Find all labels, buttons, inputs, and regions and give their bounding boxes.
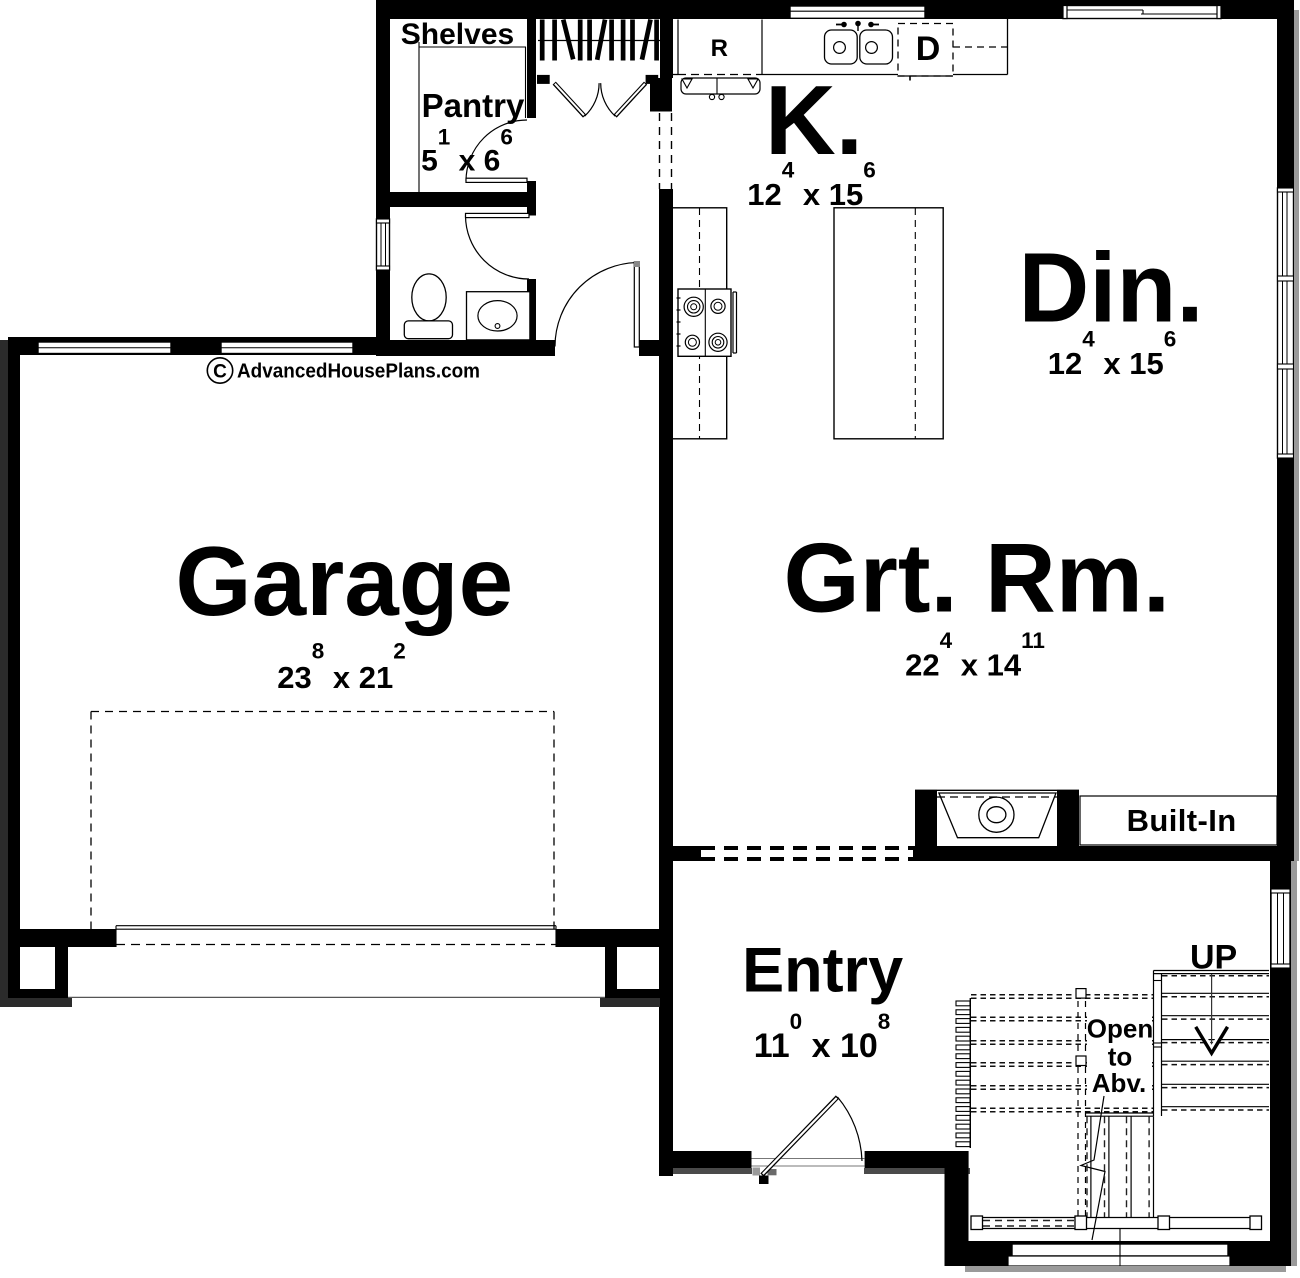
svg-text:Open: Open <box>1087 1014 1153 1044</box>
svg-text:Built-In: Built-In <box>1127 803 1237 838</box>
svg-text:D: D <box>916 30 941 68</box>
svg-text:Shelves: Shelves <box>401 18 514 51</box>
svg-text:UP: UP <box>1190 939 1237 977</box>
svg-text:R: R <box>711 35 728 62</box>
svg-text:Grt. Rm.: Grt. Rm. <box>784 522 1171 632</box>
svg-text:Abv.: Abv. <box>1092 1068 1146 1098</box>
svg-text:K.: K. <box>765 65 863 175</box>
svg-text:C: C <box>213 362 227 383</box>
svg-text:to: to <box>1108 1042 1133 1072</box>
svg-text:Garage: Garage <box>175 526 513 636</box>
svg-text:AdvancedHousePlans.com: AdvancedHousePlans.com <box>237 359 480 382</box>
svg-text:Entry: Entry <box>742 935 903 1005</box>
svg-text:Pantry: Pantry <box>422 87 525 124</box>
